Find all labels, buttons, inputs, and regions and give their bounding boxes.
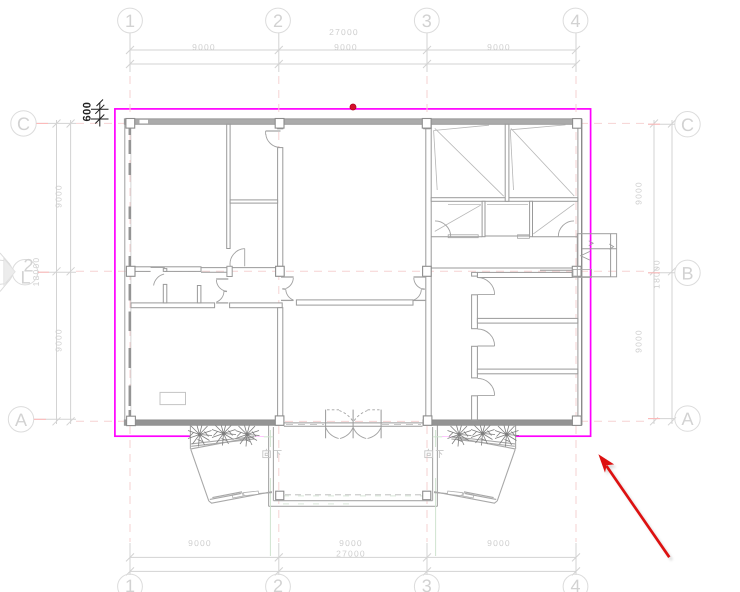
svg-text:600: 600 (82, 102, 94, 122)
svg-text:9000: 9000 (487, 538, 511, 548)
svg-text:A: A (15, 410, 27, 430)
svg-text:9000: 9000 (188, 538, 212, 548)
svg-text:9000: 9000 (634, 181, 644, 205)
svg-text:9000: 9000 (54, 328, 64, 352)
svg-text:4: 4 (570, 11, 580, 31)
svg-text:C: C (681, 115, 694, 135)
svg-text:C: C (17, 114, 30, 134)
svg-text:1: 1 (125, 11, 135, 31)
svg-text:9000: 9000 (634, 329, 644, 353)
svg-text:B: B (681, 263, 693, 283)
svg-text:2: 2 (273, 576, 283, 592)
svg-text:1: 1 (125, 576, 135, 592)
svg-text:L: L (20, 268, 30, 288)
svg-text:27000: 27000 (336, 549, 366, 559)
svg-text:A: A (681, 409, 693, 429)
svg-text:9000: 9000 (334, 42, 358, 52)
svg-text:9000: 9000 (339, 538, 363, 548)
svg-text:3: 3 (422, 11, 432, 31)
svg-text:27000: 27000 (329, 27, 359, 37)
svg-text:18000: 18000 (652, 259, 662, 289)
svg-text:9000: 9000 (192, 42, 216, 52)
svg-text:9000: 9000 (487, 42, 511, 52)
svg-text:2: 2 (273, 11, 283, 31)
svg-text:4: 4 (570, 576, 580, 592)
svg-text:3: 3 (422, 576, 432, 592)
svg-text:9000: 9000 (54, 184, 64, 208)
